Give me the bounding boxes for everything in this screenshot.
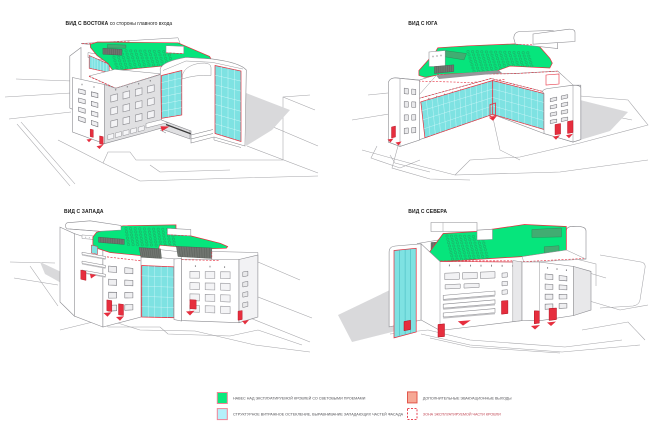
svg-text:ВИД С ВОСТОКА со стороны главн: ВИД С ВОСТОКА со стороны главного входа [66,21,173,27]
svg-text:ДОПОЛНИТЕЛЬНЫЕ ЭВАКУАЦИОННЫЕ В: ДОПОЛНИТЕЛЬНЫЕ ЭВАКУАЦИОННЫЕ ВЫХОДЫ [423,397,512,401]
svg-text:ВИД С ЗАПАДА: ВИД С ЗАПАДА [64,209,104,215]
svg-text:НАВЕС НАД ЭКСПЛУАТИРУЕМОЙ КРОВ: НАВЕС НАД ЭКСПЛУАТИРУЕМОЙ КРОВЛЕЙ СО СВЕ… [233,397,366,401]
svg-text:СТРУКТУРНОЕ ВИТРАЖНОЕ ОСТЕКЛЕН: СТРУКТУРНОЕ ВИТРАЖНОЕ ОСТЕКЛЕНИЕ, ВЫРАВН… [233,413,404,417]
svg-text:ЗОНА ЭКСПЛУАТИРУЕМОЙ ЧАСТИ КРО: ЗОНА ЭКСПЛУАТИРУЕМОЙ ЧАСТИ КРОВЛИ [423,413,501,417]
svg-text:ВИД С СЕВЕРА: ВИД С СЕВЕРА [408,209,447,215]
svg-text:ВИД С ЮГА: ВИД С ЮГА [408,21,438,27]
